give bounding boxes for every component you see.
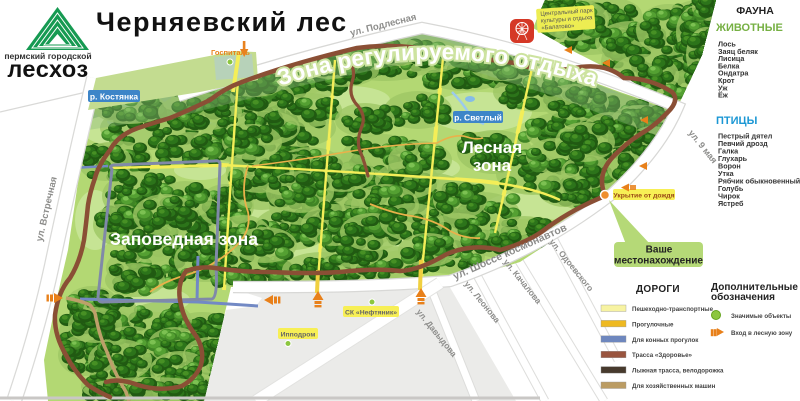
svg-text:Лесная: Лесная xyxy=(462,138,522,157)
svg-text:местонахождение: местонахождение xyxy=(614,256,703,267)
svg-text:Ёж: Ёж xyxy=(718,91,729,100)
svg-text:Ваше: Ваше xyxy=(646,245,673,256)
svg-text:Ипподром: Ипподром xyxy=(281,332,316,339)
svg-text:ЖИВОТНЫЕ: ЖИВОТНЫЕ xyxy=(715,22,783,34)
svg-text:зона: зона xyxy=(473,156,512,175)
svg-text:СК «Нефтяник»: СК «Нефтяник» xyxy=(345,310,397,317)
svg-text:Ястреб: Ястреб xyxy=(718,199,744,208)
svg-text:Заповедная зона: Заповедная зона xyxy=(110,229,258,249)
svg-text:ФАУНА: ФАУНА xyxy=(736,5,774,17)
svg-text:р. Светлый: р. Светлый xyxy=(454,113,502,123)
svg-text:ДОРОГИ: ДОРОГИ xyxy=(636,284,680,295)
svg-text:Пешеходно-транспортные: Пешеходно-транспортные xyxy=(632,306,714,313)
svg-text:Трасса «Здоровье»: Трасса «Здоровье» xyxy=(632,352,693,359)
svg-text:Для хозяйственных машин: Для хозяйственных машин xyxy=(632,383,716,390)
svg-text:Укрытие от дождя: Укрытие от дождя xyxy=(613,193,674,200)
svg-text:Вход в лесную зону: Вход в лесную зону xyxy=(731,330,793,337)
svg-text:лесхоз: лесхоз xyxy=(7,56,88,82)
svg-text:Черняевский лес: Черняевский лес xyxy=(96,7,348,37)
svg-text:Прогулочные: Прогулочные xyxy=(632,321,674,328)
svg-text:Для конных прогулок: Для конных прогулок xyxy=(632,337,699,344)
svg-text:обозначения: обозначения xyxy=(711,291,775,303)
svg-text:Значимые объекты: Значимые объекты xyxy=(731,313,791,320)
svg-text:ПТИЦЫ: ПТИЦЫ xyxy=(716,115,758,127)
svg-text:р. Костянка: р. Костянка xyxy=(90,92,138,102)
svg-text:Лыжная трасса, велодорожка: Лыжная трасса, велодорожка xyxy=(632,368,724,375)
